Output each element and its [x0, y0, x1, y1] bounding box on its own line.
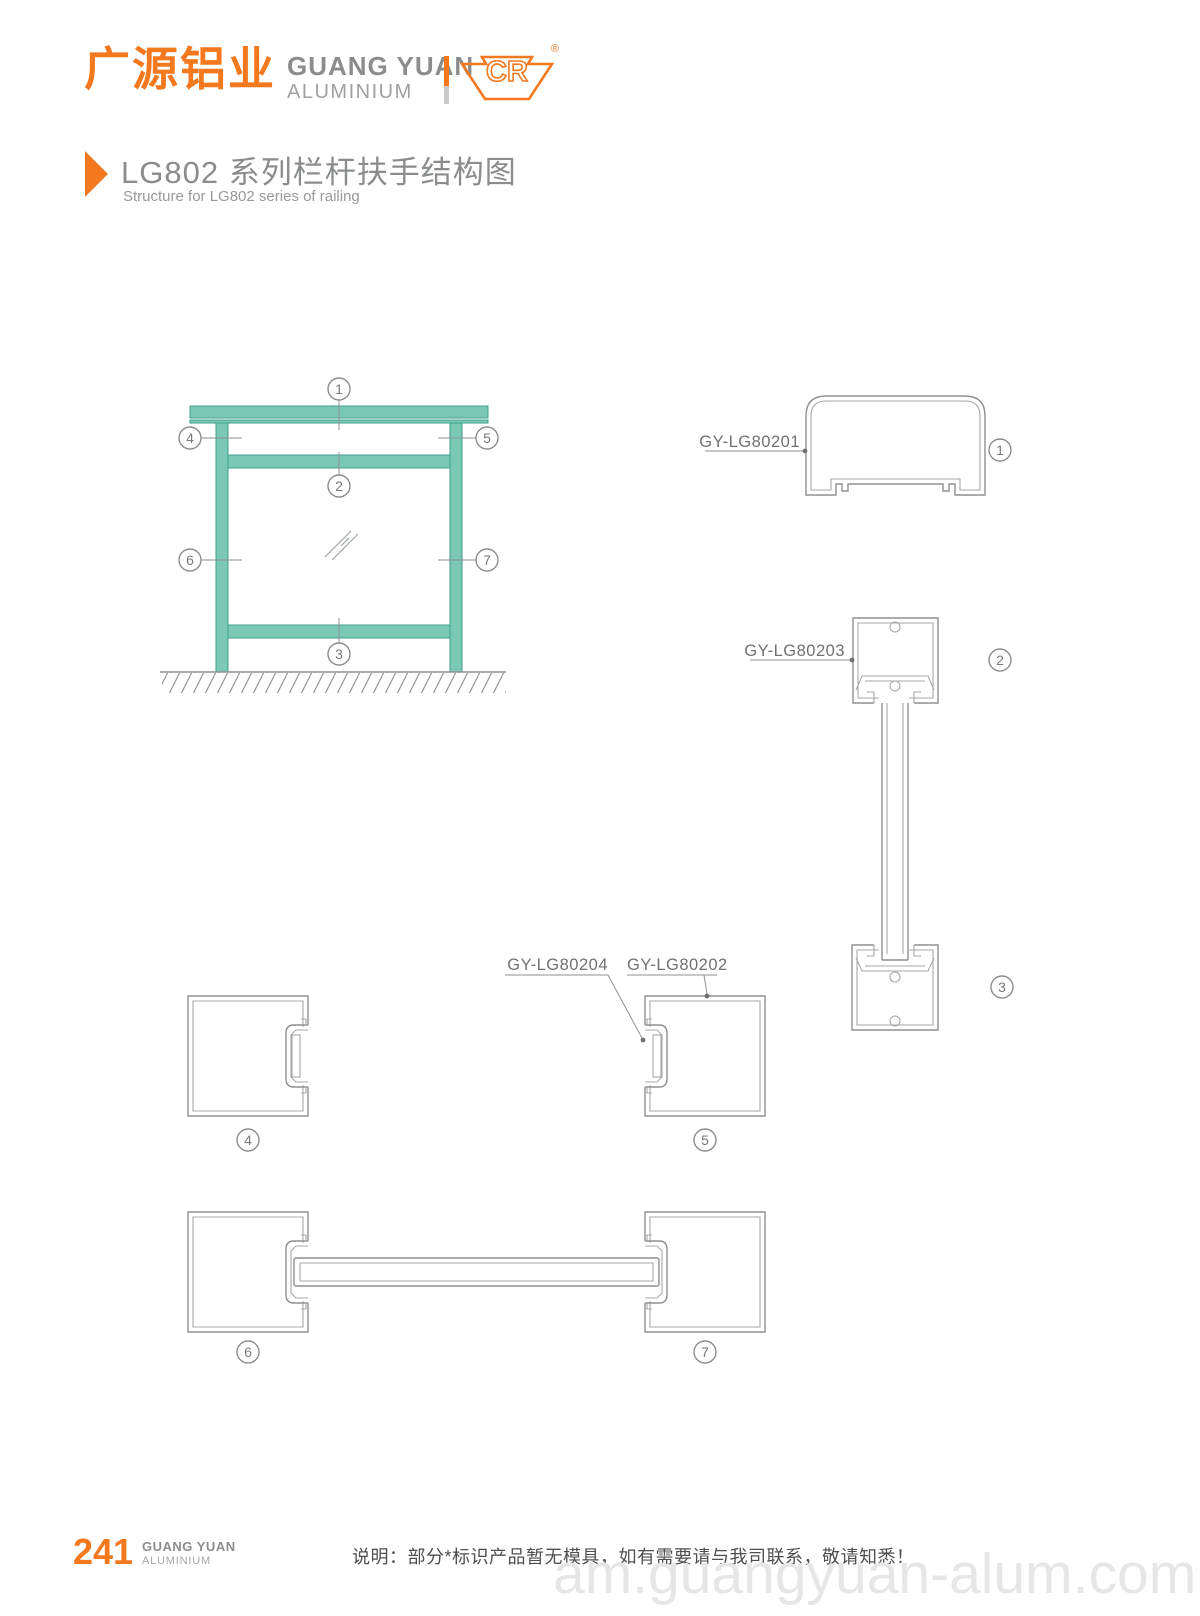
ground-hatching	[162, 673, 506, 693]
profile-section-5: GY-LG80204 GY-LG80202 5	[505, 956, 765, 1151]
svg-text:3: 3	[998, 979, 1006, 995]
elevation-leader-lines	[201, 400, 476, 643]
label-gy-lg80202: GY-LG80202	[627, 956, 728, 974]
glass-symbol-icon	[325, 531, 358, 560]
footer-brand: GUANG YUAN ALUMINIUM	[142, 1540, 236, 1567]
callout-6: 6	[179, 549, 201, 571]
svg-text:7: 7	[701, 1344, 709, 1360]
screw-boss-icon	[890, 972, 900, 982]
screw-boss-icon	[890, 681, 900, 691]
watermark-url: am.guangyuan-alum.com	[553, 1546, 1196, 1603]
svg-text:5: 5	[483, 430, 491, 446]
callout-7: 7	[476, 549, 498, 571]
callout-1: 1	[328, 378, 350, 400]
footer-brand-line1: GUANG YUAN	[142, 1540, 236, 1553]
svg-text:2: 2	[996, 652, 1004, 668]
page-number: 241	[73, 1534, 133, 1570]
catalog-page: 广源铝业 GUANG YUAN ALUMINIUM CR ® LG802 系列栏…	[0, 0, 1200, 1616]
section-callout-5: 5	[694, 1129, 716, 1151]
clip-channel	[645, 1241, 667, 1303]
section-callout-7: 7	[694, 1341, 716, 1363]
profile-section-2: GY-LG80203 2	[744, 618, 1011, 703]
panel-strip-vertical	[882, 703, 908, 960]
svg-text:6: 6	[244, 1344, 252, 1360]
section-callout-2: 2	[989, 649, 1011, 671]
svg-text:1: 1	[335, 381, 343, 397]
elevation-view: 1 2 3 4 5 6 7	[160, 378, 506, 693]
profile-section-1-handrail: GY-LG80201 1	[699, 396, 1011, 495]
profile-section-6: 6	[188, 1212, 308, 1363]
svg-text:5: 5	[701, 1132, 709, 1148]
section-callout-4: 4	[237, 1129, 259, 1151]
clip-channel	[286, 1025, 308, 1087]
callout-4: 4	[179, 427, 201, 449]
label-gy-lg80201: GY-LG80201	[699, 433, 800, 451]
svg-text:3: 3	[335, 646, 343, 662]
profile-section-4: 4	[188, 996, 308, 1151]
callout-2: 2	[328, 475, 350, 497]
svg-text:1: 1	[996, 442, 1004, 458]
svg-text:6: 6	[186, 552, 194, 568]
railing-structure-drawing: 1 2 3 4 5 6 7 GY-LG80201	[0, 0, 1200, 1616]
clip-channel	[286, 1241, 308, 1303]
label-gy-lg80204: GY-LG80204	[507, 956, 608, 974]
elevation-right-post	[450, 423, 462, 672]
profile-section-3: 3	[852, 945, 1013, 1030]
elevation-left-post	[216, 423, 228, 672]
clip-channel	[645, 1025, 667, 1087]
svg-text:4: 4	[186, 430, 194, 446]
label-gy-lg80203: GY-LG80203	[744, 642, 845, 660]
profile-section-7: 7	[645, 1212, 765, 1363]
svg-text:7: 7	[483, 552, 491, 568]
section-callout-1: 1	[989, 439, 1011, 461]
section-callout-3: 3	[991, 976, 1013, 998]
svg-text:2: 2	[335, 478, 343, 494]
callout-5: 5	[476, 427, 498, 449]
section-callout-6: 6	[237, 1341, 259, 1363]
callout-3: 3	[328, 643, 350, 665]
horizontal-rail-bar	[294, 1258, 659, 1286]
svg-text:4: 4	[244, 1132, 252, 1148]
footer-brand-line2: ALUMINIUM	[142, 1556, 236, 1567]
